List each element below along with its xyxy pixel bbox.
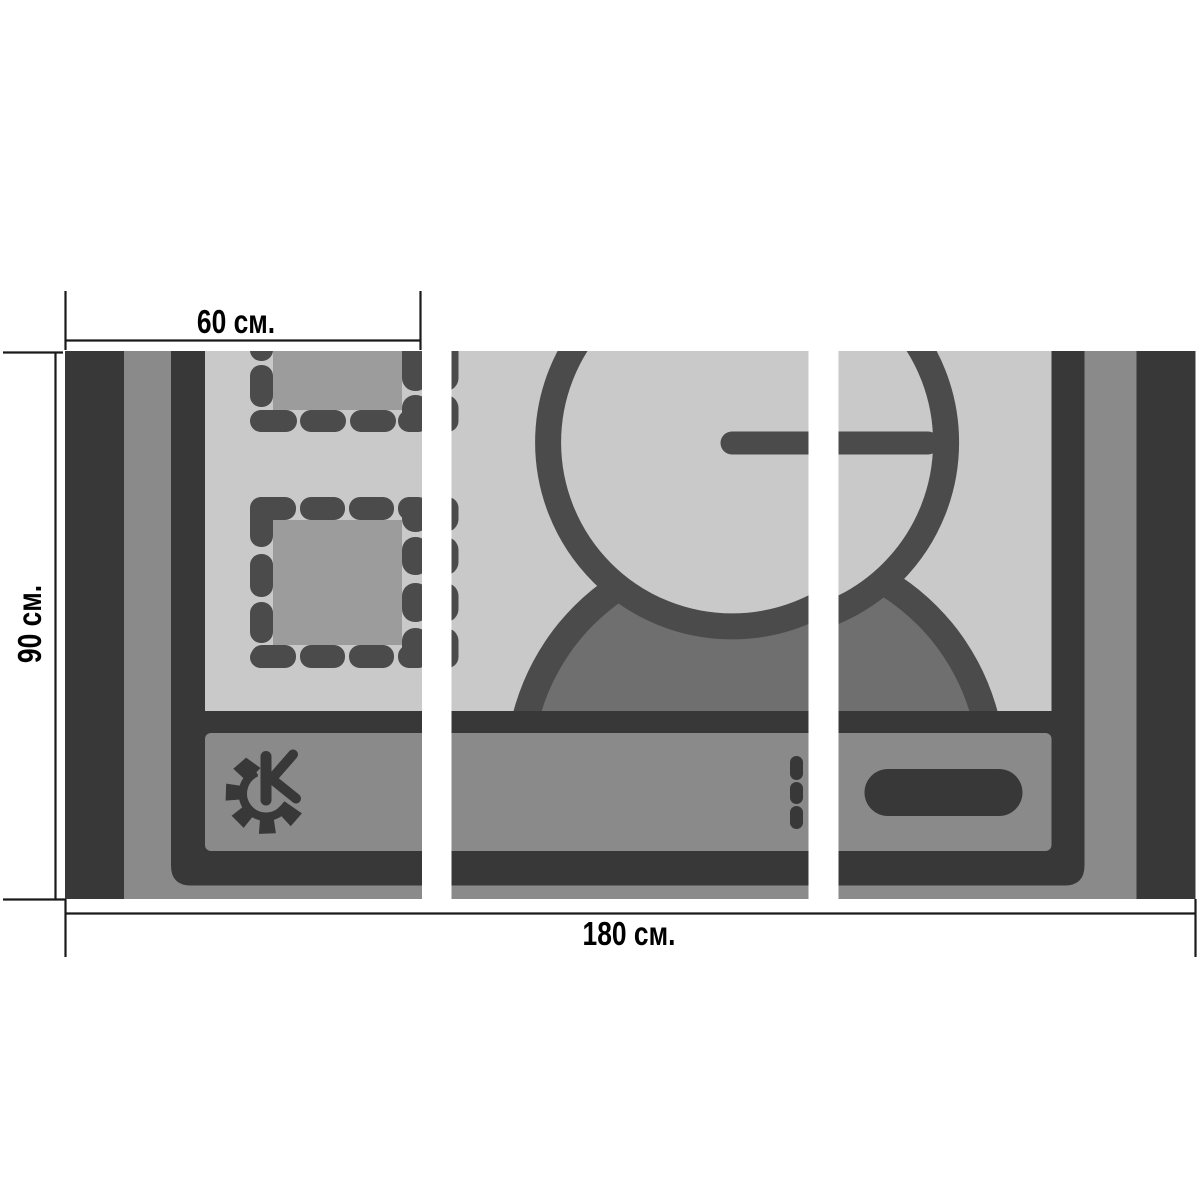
svg-text:180 см.: 180 см. [583, 916, 676, 952]
svg-text:60 см.: 60 см. [197, 304, 275, 340]
svg-text:90 см.: 90 см. [12, 585, 48, 663]
